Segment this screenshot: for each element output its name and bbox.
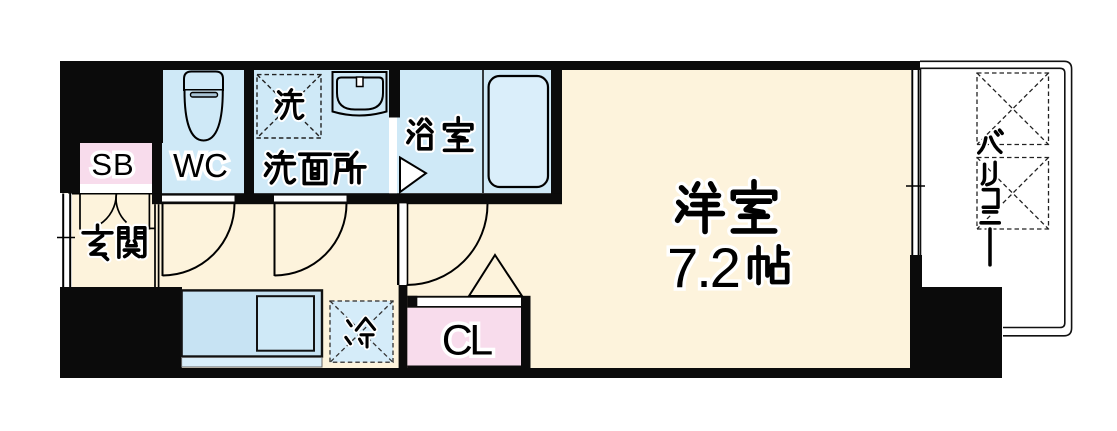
svg-text:7.2: 7.2 — [667, 236, 739, 299]
svg-text:SB: SB — [91, 147, 134, 182]
svg-text:CL: CL — [442, 317, 493, 365]
svg-text:WC: WC — [173, 147, 228, 184]
